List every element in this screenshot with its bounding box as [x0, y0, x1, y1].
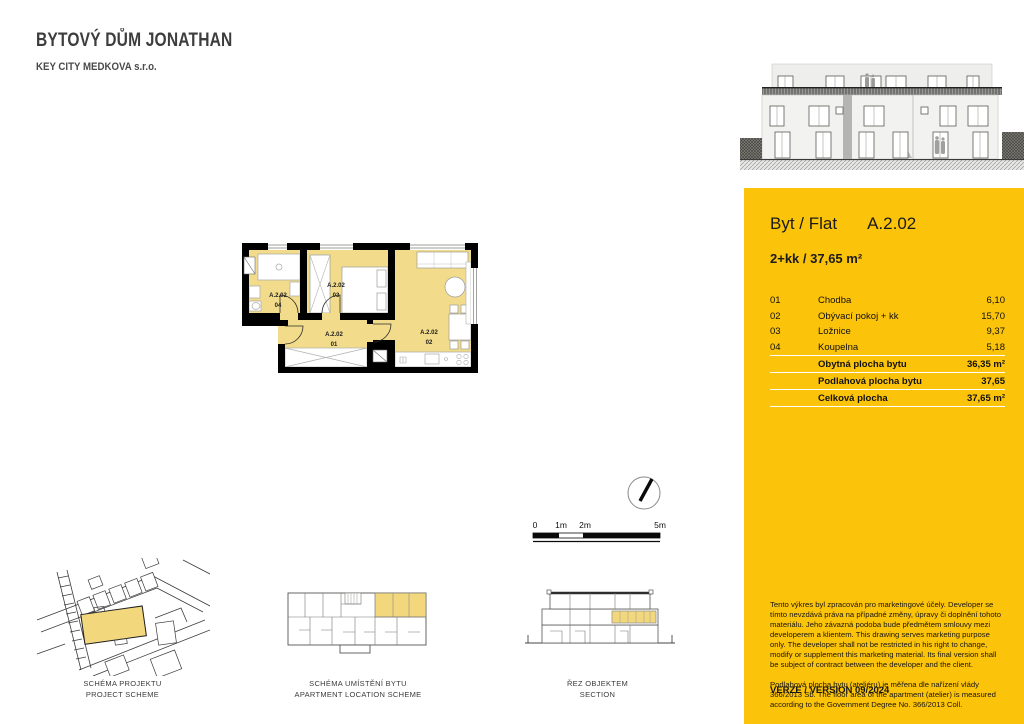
- summary-row: Obytná plocha bytu 36,35 m²: [770, 355, 1005, 372]
- location-scheme-caption-cz: SCHÉMA UMÍSTĚNÍ BYTU: [285, 679, 431, 690]
- apartment-floor-plan: A.2.02 04 A.2.02 03 A.2.02 01 A.2.02 02: [240, 240, 480, 376]
- scale-tick-2m: 2m: [579, 520, 591, 530]
- room-name: Obývací pokoj + kk: [818, 311, 981, 322]
- room-name: Koupelna: [818, 342, 987, 353]
- project-scheme-caption: SCHÉMA PROJEKTU PROJECT SCHEME: [35, 679, 210, 700]
- table-row: 04 Koupelna 5,18: [770, 340, 1005, 356]
- version-label: VERZE / VERSION 09/2024: [770, 685, 889, 696]
- summary-value: 37,65: [981, 376, 1005, 387]
- room-label-num-01: 01: [331, 342, 338, 348]
- summary-row: Podlahová plocha bytu 37,65: [770, 372, 1005, 389]
- room-area: 5,18: [987, 342, 1006, 353]
- room-number: 03: [770, 326, 818, 337]
- room-label-num-02: 02: [426, 340, 433, 346]
- summary-value: 37,65 m²: [967, 393, 1005, 404]
- project-scheme-caption-cz: SCHÉMA PROJEKTU: [35, 679, 210, 690]
- developer-name: KEY CITY MEDKOVA s.r.o.: [36, 61, 247, 73]
- flat-disposition: 2+kk / 37,65 m²: [770, 251, 862, 266]
- room-area: 15,70: [981, 311, 1005, 322]
- scale-tick-1m: 1m: [555, 520, 567, 530]
- room-area: 9,37: [987, 326, 1006, 337]
- room-number: 02: [770, 311, 818, 322]
- project-scheme-drawing: [35, 558, 210, 676]
- table-row: 02 Obývací pokoj + kk 15,70: [770, 309, 1005, 325]
- summary-label: Obytná plocha bytu: [770, 359, 967, 370]
- scale-tick-5m: 5m: [654, 520, 666, 530]
- marketing-disclaimer: Tento výkres byl zpracován pro marketing…: [770, 600, 1006, 670]
- north-arrow-icon: [622, 472, 666, 516]
- summary-label: Celková plocha: [770, 393, 967, 404]
- room-label-id-03: A.2.02: [327, 283, 345, 289]
- room-label-num-03: 03: [333, 293, 340, 299]
- brochure-page: { "document": { "title": "BYTOVÝ DŮM JON…: [0, 0, 1024, 724]
- section-caption-cz: ŘEZ OBJEKTEM: [520, 679, 675, 690]
- flat-header: Byt / Flat A.2.02: [770, 214, 916, 234]
- building-elevation-drawing: [740, 22, 1024, 172]
- summary-label: Podlahová plocha bytu: [770, 376, 981, 387]
- room-area: 6,10: [987, 295, 1006, 306]
- unit-info-panel: Byt / Flat A.2.02 2+kk / 37,65 m² 01 Cho…: [744, 188, 1024, 724]
- location-scheme-caption-en: APARTMENT LOCATION SCHEME: [285, 690, 431, 701]
- scale-tick-0: 0: [533, 520, 538, 530]
- section-caption: ŘEZ OBJEKTEM SECTION: [520, 679, 675, 700]
- project-scheme-caption-en: PROJECT SCHEME: [35, 690, 210, 701]
- flat-id: A.2.02: [867, 214, 916, 234]
- section-drawing: [520, 585, 680, 650]
- summary-row: Celková plocha 37,65 m²: [770, 389, 1005, 407]
- table-row: 03 Ložnice 9,37: [770, 324, 1005, 340]
- project-title: BYTOVÝ DŮM JONATHAN: [36, 30, 232, 52]
- room-name: Chodba: [818, 295, 987, 306]
- scale-bar: 0 1m 2m 5m: [528, 514, 678, 546]
- section-caption-en: SECTION: [520, 690, 675, 701]
- summary-value: 36,35 m²: [967, 359, 1005, 370]
- apartment-location-scheme-drawing: [285, 588, 431, 660]
- table-row: 01 Chodba 6,10: [770, 293, 1005, 309]
- legal-text-block: Tento výkres byl zpracován pro marketing…: [770, 600, 1006, 720]
- room-number: 04: [770, 342, 818, 353]
- room-name: Ložnice: [818, 326, 987, 337]
- title-block: BYTOVÝ DŮM JONATHAN KEY CITY MEDKOVA s.r…: [36, 30, 276, 73]
- room-label-id-02: A.2.02: [420, 330, 438, 336]
- room-area-table: 01 Chodba 6,10 02 Obývací pokoj + kk 15,…: [770, 293, 1005, 407]
- flat-label: Byt / Flat: [770, 214, 837, 234]
- room-label-num-04: 04: [275, 303, 282, 309]
- room-label-id-04: A.2.02: [269, 293, 287, 299]
- room-number: 01: [770, 295, 818, 306]
- room-label-id-01: A.2.02: [325, 332, 343, 338]
- location-scheme-caption: SCHÉMA UMÍSTĚNÍ BYTU APARTMENT LOCATION …: [285, 679, 431, 700]
